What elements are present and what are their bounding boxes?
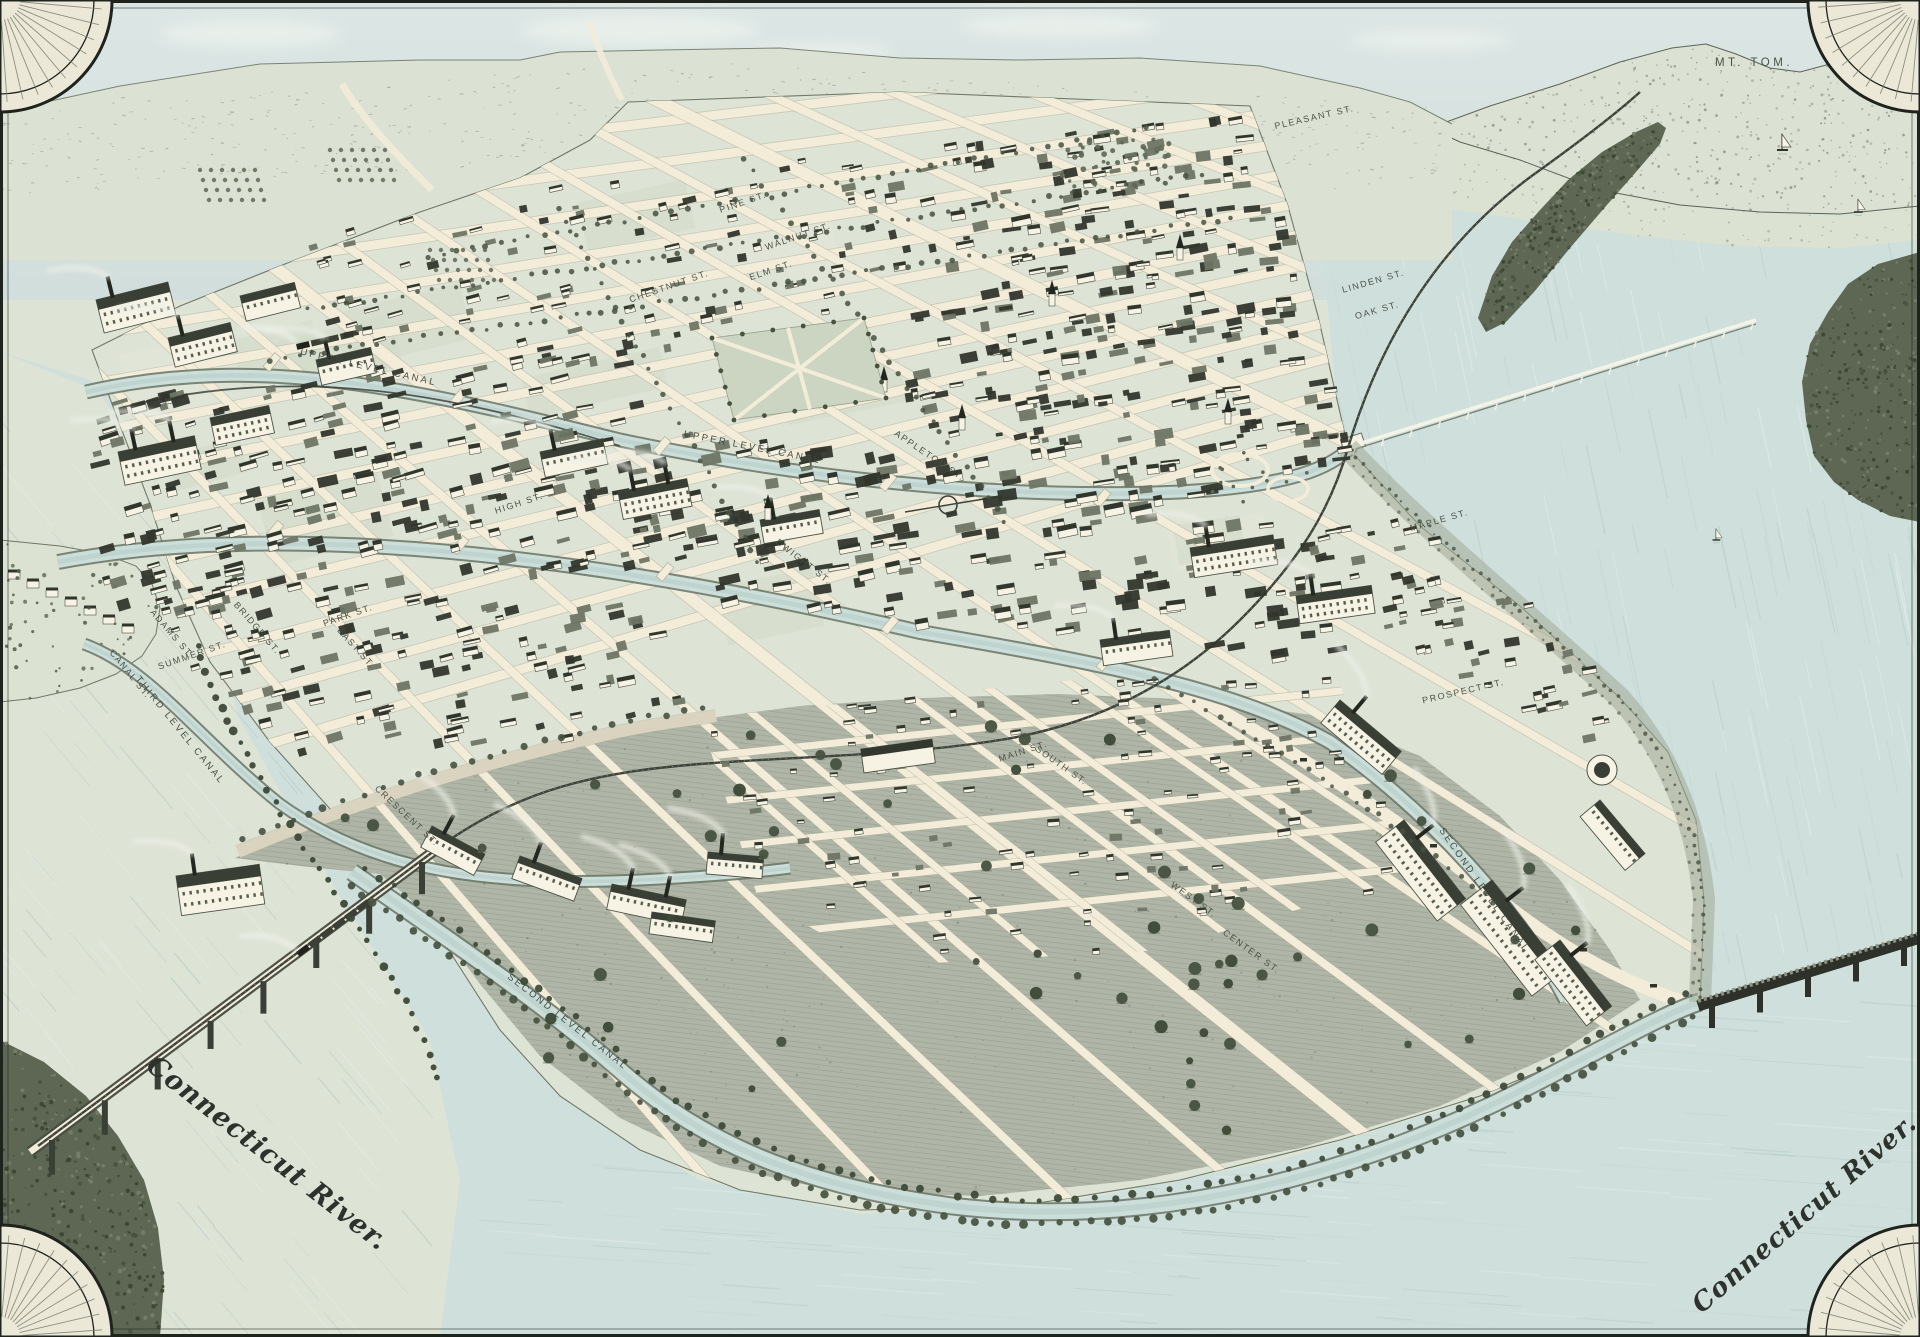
map-label-mt-tom: MT. TOM. [1715,57,1793,69]
map-label-third-level-canal: THIRD LEVEL CANAL [133,674,227,787]
panoramic-map-stage: SUMMER ST.PARK ST.HIGH ST.MAIN ST.MAPLE … [0,0,1920,1337]
west-bank-strip [0,540,165,1337]
map-label-connecticut-river: Connecticut River. [140,1049,394,1257]
birdseye-map-canvas: SUMMER ST.PARK ST.HIGH ST.MAIN ST.MAPLE … [0,0,1920,1337]
